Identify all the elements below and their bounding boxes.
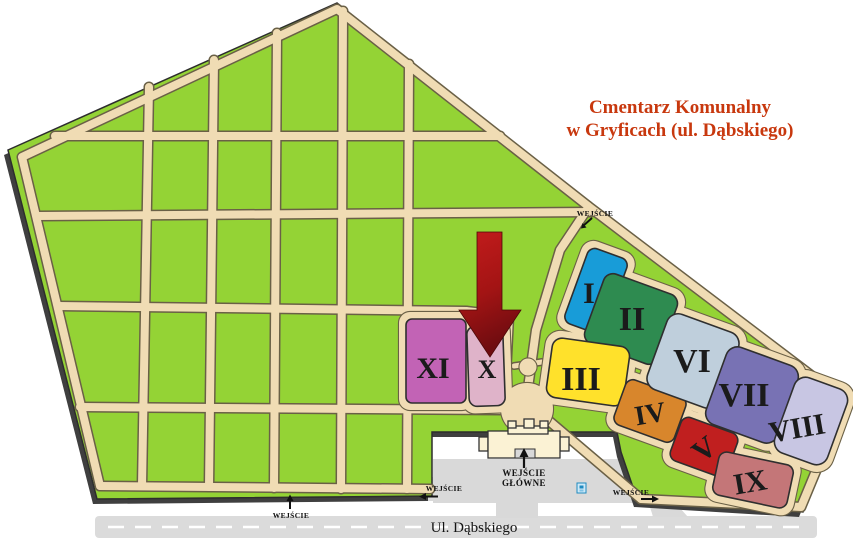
section-iii-label: III [561, 361, 601, 398]
blue-marker-icon [577, 483, 586, 493]
section-vi-label: VI [673, 343, 711, 380]
main-entrance-label-line2: GŁÓWNE [502, 478, 546, 488]
main-entrance-label-line1: WEJŚCIE [502, 468, 545, 478]
section-x-label: X [478, 355, 497, 384]
section-ii-label: II [619, 301, 645, 338]
entrance-west-label: WEJŚCIE [426, 483, 463, 493]
map-title-line1: Cmentarz Komunalny [540, 96, 820, 119]
entrance-east-label: WEJŚCIE [613, 487, 650, 497]
street-label: Ul. Dąbskiego [404, 520, 544, 537]
section-xi-label: XI [416, 352, 449, 385]
cemetery-map: I II III IV V VI VII VIII IX X XI WEJŚCI… [0, 0, 853, 546]
entrance-south-label: WEJŚCIE [273, 510, 310, 520]
section-iv-label: IV [632, 397, 668, 433]
entrance-north-label: WEJŚCIE [577, 208, 614, 218]
section-ix-label: IX [731, 463, 770, 501]
map-title: Cmentarz Komunalny w Gryficach (ul. Dąbs… [540, 96, 820, 142]
section-vii-label: VII [718, 377, 769, 414]
section-i-label: I [583, 277, 595, 310]
map-title-line2: w Gryficach (ul. Dąbskiego) [540, 119, 820, 142]
